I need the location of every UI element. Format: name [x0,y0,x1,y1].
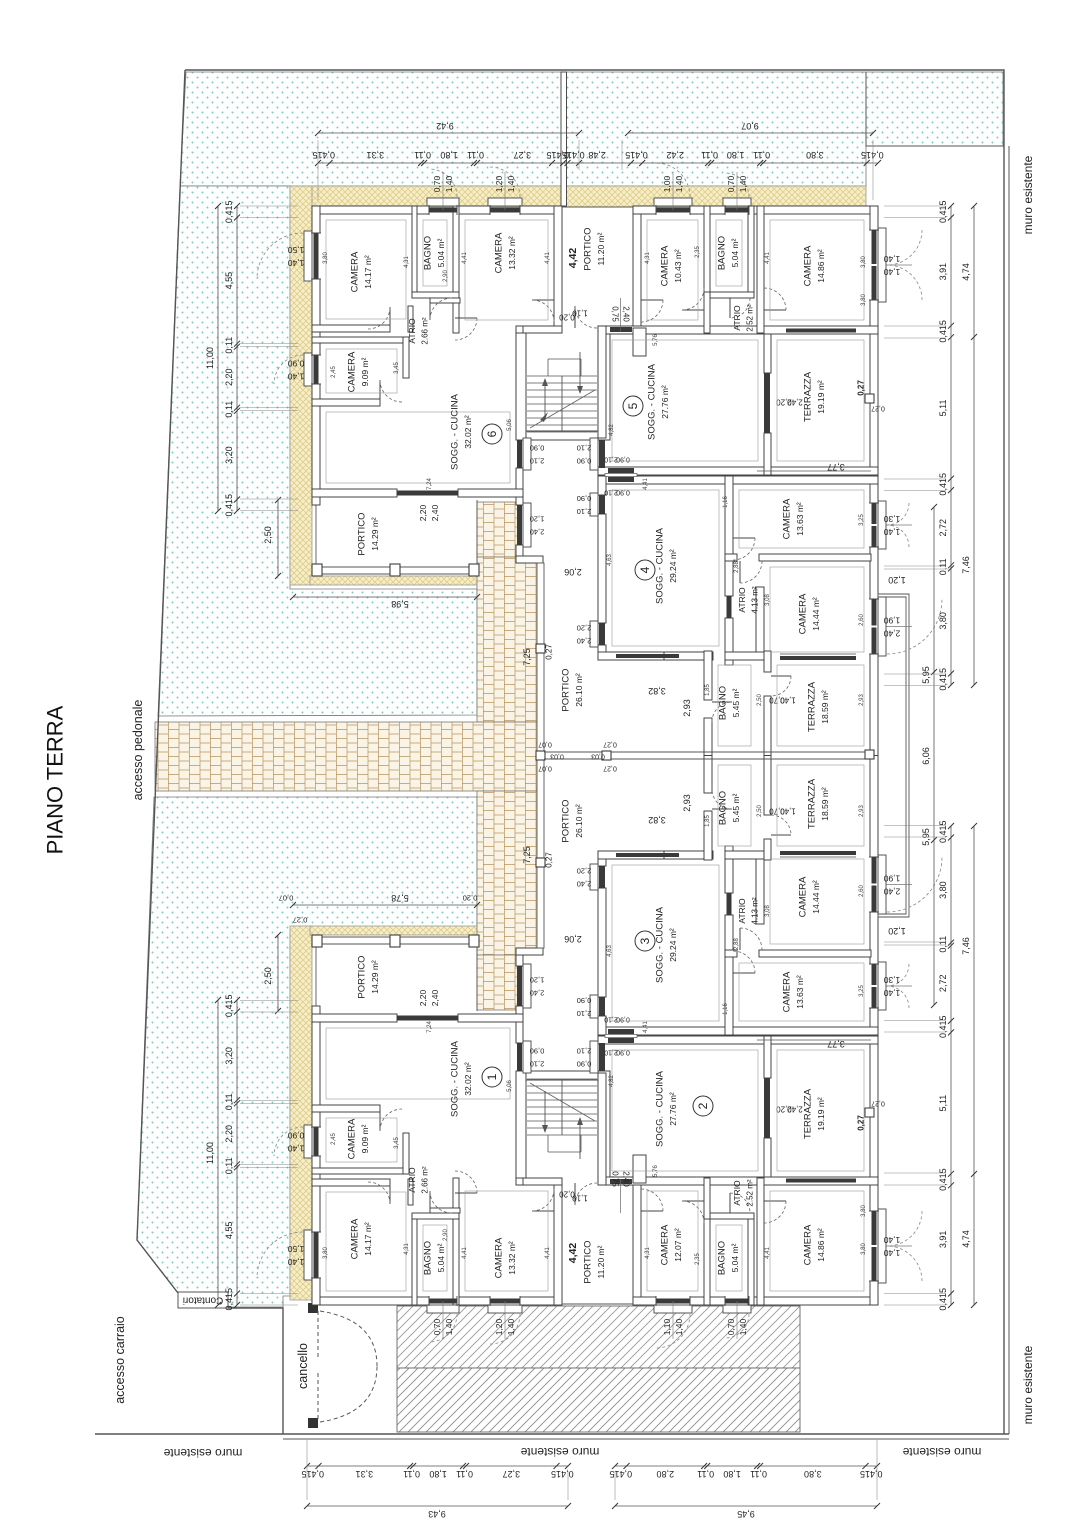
svg-text:PIANO TERRA: PIANO TERRA [43,705,68,854]
svg-text:CAMERA: CAMERA [782,498,793,539]
svg-text:1,20: 1,20 [888,575,906,585]
svg-text:0,27: 0,27 [857,380,866,396]
svg-text:CAMERA: CAMERA [660,245,671,286]
svg-text:2.52 m²: 2.52 m² [746,1179,755,1206]
svg-text:0,415: 0,415 [938,1288,948,1311]
svg-text:9,45: 9,45 [737,1509,755,1519]
svg-text:0,75: 0,75 [611,306,620,322]
svg-text:1: 1 [485,1073,499,1080]
svg-text:14.29 m²: 14.29 m² [370,517,380,551]
svg-text:9,42: 9,42 [436,121,454,131]
svg-text:PORTICO: PORTICO [357,512,368,555]
svg-text:27.76 m²: 27.76 m² [668,1092,678,1126]
svg-text:2,40: 2,40 [622,1171,631,1187]
svg-text:3,80: 3,80 [861,1205,867,1217]
svg-text:1,40: 1,40 [674,1318,684,1335]
svg-text:7,24: 7,24 [427,478,433,490]
svg-text:5: 5 [626,402,640,409]
svg-text:TERRAZZA: TERRAZZA [807,681,818,732]
svg-text:2,72: 2,72 [938,975,948,993]
svg-text:2,40: 2,40 [430,504,440,521]
svg-text:2,10: 2,10 [604,1016,618,1023]
svg-text:5,76: 5,76 [653,1165,659,1177]
svg-text:SOGG. - CUCINA: SOGG. - CUCINA [655,1070,666,1147]
svg-text:accesso pedonale: accesso pedonale [131,700,145,801]
svg-text:2,10: 2,10 [577,507,592,516]
svg-text:1,40: 1,40 [506,175,516,192]
svg-text:BAGNO: BAGNO [718,686,729,720]
svg-text:5,06: 5,06 [507,419,513,431]
svg-text:4,31: 4,31 [645,1247,651,1259]
svg-text:19.19 m²: 19.19 m² [816,380,826,414]
svg-text:3,80: 3,80 [323,252,329,264]
svg-text:2,40: 2,40 [787,398,803,407]
svg-text:0,11: 0,11 [467,150,484,160]
svg-text:14.17 m²: 14.17 m² [363,255,373,289]
svg-text:1,20: 1,20 [530,515,545,524]
svg-text:2,20: 2,20 [577,624,592,633]
svg-text:0,415: 0,415 [938,668,948,691]
svg-text:2,40: 2,40 [577,880,592,889]
svg-text:2: 2 [696,1102,710,1109]
svg-text:3,31: 3,31 [356,1469,374,1479]
svg-text:0,75: 0,75 [611,1171,620,1187]
svg-text:2,50: 2,50 [757,694,763,706]
svg-text:0,11: 0,11 [938,558,948,575]
svg-text:2,40: 2,40 [883,629,900,639]
svg-text:SOGG. - CUCINA: SOGG. - CUCINA [450,393,461,470]
svg-text:5.04 m²: 5.04 m² [436,1243,446,1272]
svg-text:3,31: 3,31 [367,150,385,160]
svg-text:1,80: 1,80 [440,150,458,160]
svg-text:2,50: 2,50 [757,805,763,817]
svg-text:0,415: 0,415 [224,201,234,224]
svg-text:5.04 m²: 5.04 m² [730,1243,740,1272]
svg-text:3,77: 3,77 [827,462,845,472]
svg-text:CAMERA: CAMERA [494,232,505,273]
svg-text:14.17 m²: 14.17 m² [363,1222,373,1256]
svg-text:3,45: 3,45 [394,362,400,374]
svg-text:0,11: 0,11 [224,401,234,418]
svg-text:14.29 m²: 14.29 m² [370,960,380,994]
svg-text:0,90: 0,90 [616,489,630,496]
svg-text:2,48: 2,48 [588,150,606,160]
svg-text:2,40: 2,40 [430,989,440,1006]
svg-text:1,40: 1,40 [883,267,900,277]
svg-text:2,40: 2,40 [787,1105,803,1114]
svg-text:4,63: 4,63 [607,554,613,566]
svg-text:0,415: 0,415 [938,820,948,843]
svg-text:9.09 m²: 9.09 m² [360,1124,370,1153]
svg-text:0,90: 0,90 [287,1131,304,1141]
svg-text:0,11: 0,11 [224,1093,234,1110]
svg-text:1,40: 1,40 [287,372,304,382]
svg-text:2.66 m²: 2.66 m² [421,317,430,344]
svg-text:5.04 m²: 5.04 m² [730,238,740,267]
svg-text:3,27: 3,27 [514,150,532,160]
svg-text:1,40: 1,40 [506,1318,516,1335]
svg-text:3,08: 3,08 [765,594,771,606]
svg-text:2,10: 2,10 [577,444,592,453]
svg-text:CAMERA: CAMERA [782,971,793,1012]
svg-text:1,00: 1,00 [662,175,672,192]
svg-text:5,78: 5,78 [391,893,409,903]
svg-text:27.76 m²: 27.76 m² [660,385,670,419]
svg-text:6: 6 [485,430,499,437]
svg-text:2,20: 2,20 [418,989,428,1006]
svg-text:0,90: 0,90 [577,494,592,503]
svg-text:13.63 m²: 13.63 m² [795,502,805,536]
svg-text:2,60: 2,60 [859,885,865,897]
svg-text:6,06: 6,06 [921,747,931,765]
svg-text:18.59 m²: 18.59 m² [820,787,830,821]
svg-text:1,40: 1,40 [883,527,900,537]
svg-text:2,40: 2,40 [883,887,900,897]
svg-text:1,40: 1,40 [738,175,748,192]
svg-text:accesso carraio: accesso carraio [113,1316,127,1404]
svg-text:2,20: 2,20 [577,867,592,876]
svg-text:14.44 m²: 14.44 m² [811,880,821,914]
svg-text:1,40: 1,40 [738,1318,748,1335]
svg-text:muro esistente: muro esistente [902,1445,981,1459]
svg-text:1,19: 1,19 [572,1194,588,1203]
svg-text:4,63: 4,63 [607,945,613,957]
svg-text:1,85: 1,85 [705,815,711,827]
svg-text:CAMERA: CAMERA [660,1224,671,1265]
svg-text:CAMERA: CAMERA [803,245,814,286]
svg-text:muro esistente: muro esistente [163,1446,242,1460]
svg-text:2,93: 2,93 [682,794,692,812]
svg-text:3,25: 3,25 [859,985,865,997]
svg-text:2,40: 2,40 [622,306,631,322]
svg-text:5,98: 5,98 [391,599,409,609]
svg-text:2,10: 2,10 [604,489,618,496]
svg-text:3,82: 3,82 [648,815,666,825]
svg-text:cancello: cancello [296,1343,310,1389]
svg-text:7,24: 7,24 [427,1021,433,1033]
svg-text:2,45: 2,45 [331,1133,337,1145]
svg-text:0,11: 0,11 [701,150,718,160]
svg-text:1,19: 1,19 [572,309,588,318]
svg-text:2,20: 2,20 [418,504,428,521]
svg-text:7,46: 7,46 [961,937,971,955]
svg-text:5,06: 5,06 [507,1080,513,1092]
svg-text:0,70: 0,70 [726,1318,736,1335]
svg-text:14.86 m²: 14.86 m² [816,249,826,283]
svg-text:SOGG. - CUCINA: SOGG. - CUCINA [450,1040,461,1117]
svg-text:Contatori: Contatori [183,1295,224,1306]
svg-text:4,41: 4,41 [462,1247,468,1259]
svg-text:0,415: 0,415 [938,1168,948,1191]
svg-text:ATRIO: ATRIO [737,587,747,613]
svg-text:2,93: 2,93 [682,699,692,717]
svg-text:1,85: 1,85 [705,684,711,696]
svg-text:2,35: 2,35 [695,1253,701,1265]
svg-text:4: 4 [638,566,652,573]
svg-text:4,41: 4,41 [462,252,468,264]
svg-text:5,76: 5,76 [653,334,659,346]
svg-text:CAMERA: CAMERA [798,876,809,917]
svg-text:1,80: 1,80 [723,1469,741,1479]
svg-text:0,11: 0,11 [403,1469,420,1479]
svg-text:4,41: 4,41 [643,1021,649,1033]
svg-text:2,50: 2,50 [263,967,273,985]
svg-text:PORTICO: PORTICO [357,955,368,998]
svg-text:3,27: 3,27 [503,1469,521,1479]
svg-text:0,415: 0,415 [301,1469,324,1479]
svg-text:0,415: 0,415 [610,1469,633,1479]
svg-text:18.59 m²: 18.59 m² [820,690,830,724]
svg-text:4,41: 4,41 [765,252,771,264]
svg-text:0,11: 0,11 [224,337,234,354]
svg-text:0,07: 0,07 [279,894,294,903]
svg-text:2,42: 2,42 [666,150,684,160]
svg-text:SOGG. - CUCINA: SOGG. - CUCINA [655,906,666,983]
svg-text:2,06: 2,06 [564,934,582,944]
svg-text:ATRIO: ATRIO [737,898,747,924]
svg-text:5,11: 5,11 [938,1095,948,1112]
svg-text:1,20: 1,20 [888,926,906,936]
svg-text:2,10: 2,10 [604,1049,618,1056]
svg-text:9.09 m²: 9.09 m² [360,357,370,386]
svg-text:3,77: 3,77 [827,1039,845,1049]
svg-text:ATRIO: ATRIO [732,1180,742,1206]
svg-text:4,74: 4,74 [961,1230,971,1248]
svg-text:1,40: 1,40 [780,807,796,816]
svg-text:muro esistente: muro esistente [1021,155,1035,234]
svg-text:11.20 m²: 11.20 m² [596,1245,606,1278]
svg-text:2,40: 2,40 [530,989,545,998]
svg-text:4,41: 4,41 [545,1247,551,1259]
svg-text:3,08: 3,08 [765,905,771,917]
svg-text:0,415: 0,415 [224,995,234,1018]
svg-text:2,06: 2,06 [564,567,582,577]
svg-text:11,00: 11,00 [205,347,215,369]
svg-text:0,07: 0,07 [538,741,552,748]
svg-text:4,42: 4,42 [567,1243,579,1264]
svg-text:CAMERA: CAMERA [494,1237,505,1278]
svg-text:1,50: 1,50 [287,1244,304,1254]
svg-text:19.19 m²: 19.19 m² [816,1097,826,1131]
svg-text:3,82: 3,82 [648,686,666,696]
svg-text:1,20: 1,20 [494,1318,504,1335]
svg-text:CAMERA: CAMERA [350,1218,361,1259]
svg-text:3,91: 3,91 [938,1231,948,1249]
svg-text:7,25: 7,25 [522,846,532,864]
svg-text:2,45: 2,45 [331,366,337,378]
svg-text:TERRAZZA: TERRAZZA [807,778,818,829]
svg-text:2,60: 2,60 [859,614,865,626]
svg-text:0,415: 0,415 [312,150,335,160]
svg-text:32.02 m²: 32.02 m² [463,415,473,449]
svg-text:4,74: 4,74 [961,263,971,281]
svg-text:0,11: 0,11 [697,1469,714,1479]
svg-text:2,90: 2,90 [443,270,449,282]
svg-text:2,40: 2,40 [530,528,545,537]
svg-text:2,88: 2,88 [734,938,740,950]
svg-text:1,40: 1,40 [883,254,900,264]
svg-text:1,40: 1,40 [780,696,796,705]
svg-text:0,415: 0,415 [860,1469,883,1479]
svg-text:4.13 m²: 4.13 m² [751,897,760,924]
svg-text:3,20: 3,20 [224,1047,234,1065]
svg-text:0,90: 0,90 [616,456,630,463]
svg-text:0,27: 0,27 [603,741,617,748]
svg-text:0,90: 0,90 [530,1047,545,1056]
svg-text:29.24 m²: 29.24 m² [668,549,678,583]
svg-text:ATRIO: ATRIO [407,318,417,344]
svg-text:0,70: 0,70 [432,175,442,192]
svg-text:12.07 m²: 12.07 m² [673,1228,683,1262]
svg-text:10.43 m²: 10.43 m² [673,249,683,283]
svg-text:3,80: 3,80 [804,1469,822,1479]
svg-text:4,55: 4,55 [224,1222,234,1240]
svg-text:5,95: 5,95 [921,666,931,684]
svg-text:1,40: 1,40 [287,258,304,268]
svg-text:ATRIO: ATRIO [407,1167,417,1193]
svg-text:1,50: 1,50 [287,245,304,255]
svg-text:0,70: 0,70 [432,1318,442,1335]
svg-text:2,10: 2,10 [530,1060,545,1069]
svg-text:0,27: 0,27 [871,1100,885,1107]
svg-text:1,80: 1,80 [727,150,745,160]
svg-text:9,07: 9,07 [741,121,759,131]
svg-text:1,40: 1,40 [287,1144,304,1154]
svg-text:SOGG. - CUCINA: SOGG. - CUCINA [647,363,658,440]
svg-text:2,20: 2,20 [224,368,234,386]
svg-text:0,27: 0,27 [857,1115,866,1131]
svg-text:1,20: 1,20 [530,976,545,985]
svg-text:3,80: 3,80 [861,256,867,268]
svg-text:0,07: 0,07 [538,765,552,772]
svg-text:14.44 m²: 14.44 m² [811,597,821,631]
svg-text:13.63 m²: 13.63 m² [795,975,805,1009]
svg-text:PORTICO: PORTICO [583,1240,594,1283]
svg-text:SOGG. - CUCINA: SOGG. - CUCINA [655,527,666,604]
svg-text:1,30: 1,30 [883,975,900,985]
svg-text:14.86 m²: 14.86 m² [816,1228,826,1262]
svg-text:0,415: 0,415 [625,150,648,160]
svg-text:CAMERA: CAMERA [803,1224,814,1265]
svg-text:0,27: 0,27 [545,644,554,660]
svg-text:0,415: 0,415 [938,473,948,496]
svg-text:7,46: 7,46 [961,556,971,574]
svg-text:1,40: 1,40 [444,175,454,192]
svg-text:0,27: 0,27 [293,916,308,925]
svg-text:5.45 m²: 5.45 m² [731,688,741,717]
svg-text:0,90: 0,90 [530,444,545,453]
svg-text:0,27: 0,27 [871,405,885,412]
svg-text:3,25: 3,25 [859,514,865,526]
svg-text:2,10: 2,10 [530,457,545,466]
svg-text:3: 3 [638,937,652,944]
svg-text:4,42: 4,42 [567,248,579,269]
svg-text:1,40: 1,40 [674,175,684,192]
svg-text:0,415: 0,415 [938,200,948,223]
svg-text:PORTICO: PORTICO [561,799,572,842]
svg-text:3,80: 3,80 [938,612,948,630]
svg-text:CAMERA: CAMERA [347,1118,358,1159]
svg-text:4.13 m²: 4.13 m² [751,586,760,613]
svg-text:1,16: 1,16 [723,496,729,508]
svg-text:muro esistente: muro esistente [520,1445,599,1459]
svg-text:1,40: 1,40 [883,988,900,998]
svg-text:BAGNO: BAGNO [717,236,728,270]
svg-text:7,25: 7,25 [522,648,532,666]
svg-text:0,90: 0,90 [616,1016,630,1023]
svg-text:2,50: 2,50 [263,526,273,544]
svg-text:4,31: 4,31 [404,1243,410,1255]
svg-text:PORTICO: PORTICO [583,227,594,270]
svg-text:BAGNO: BAGNO [423,236,434,270]
svg-text:2,10: 2,10 [577,1009,592,1018]
svg-text:4,41: 4,41 [643,478,649,490]
svg-text:2,35: 2,35 [695,246,701,258]
svg-text:2.52 m²: 2.52 m² [746,304,755,331]
svg-text:2,40: 2,40 [577,637,592,646]
svg-text:26.10 m²: 26.10 m² [574,673,584,707]
svg-text:2,10: 2,10 [577,1047,592,1056]
svg-text:CAMERA: CAMERA [798,593,809,634]
svg-text:TERRAZZA: TERRAZZA [803,1088,814,1139]
svg-text:0,11: 0,11 [938,936,948,953]
svg-text:5.45 m²: 5.45 m² [731,793,741,822]
svg-text:0,11: 0,11 [753,150,770,160]
svg-text:4,31: 4,31 [404,256,410,268]
svg-text:0,03: 0,03 [550,753,564,760]
svg-text:1,40: 1,40 [287,1257,304,1267]
svg-text:3,80: 3,80 [938,881,948,899]
svg-text:9,43: 9,43 [428,1509,446,1519]
svg-text:PORTICO: PORTICO [561,668,572,711]
svg-text:3,91: 3,91 [938,263,948,281]
svg-text:3,80: 3,80 [323,1247,329,1259]
svg-text:3,80: 3,80 [861,1243,867,1255]
svg-text:2,10: 2,10 [604,456,618,463]
svg-text:3,80: 3,80 [861,294,867,306]
svg-text:0,415: 0,415 [551,1469,574,1479]
svg-text:2,90: 2,90 [443,1229,449,1241]
svg-text:1,40: 1,40 [883,1248,900,1258]
svg-text:1,16: 1,16 [723,1003,729,1015]
svg-text:11.20 m²: 11.20 m² [596,232,606,265]
svg-text:3,45: 3,45 [394,1137,400,1149]
svg-text:CAMERA: CAMERA [347,351,358,392]
svg-text:0,11: 0,11 [750,1469,767,1479]
svg-text:CAMERA: CAMERA [350,251,361,292]
svg-text:0,90: 0,90 [577,1060,592,1069]
svg-text:26.10 m²: 26.10 m² [574,804,584,838]
svg-text:4,82: 4,82 [609,424,615,436]
svg-text:0,415: 0,415 [938,1015,948,1038]
svg-text:BAGNO: BAGNO [717,1241,728,1275]
svg-text:0,415: 0,415 [938,320,948,343]
svg-text:0,90: 0,90 [616,1049,630,1056]
svg-text:13.32 m²: 13.32 m² [507,1241,517,1275]
svg-text:11,00: 11,00 [205,1142,215,1164]
svg-text:2.66 m²: 2.66 m² [421,1166,430,1193]
svg-text:ATRIO: ATRIO [732,305,742,331]
svg-text:muro esistente: muro esistente [1021,1345,1035,1424]
svg-text:0,11: 0,11 [456,1469,473,1479]
svg-text:13.32 m²: 13.32 m² [507,236,517,270]
svg-text:32.02 m²: 32.02 m² [463,1062,473,1096]
svg-text:5.04 m²: 5.04 m² [436,238,446,267]
svg-text:2,20: 2,20 [224,1125,234,1143]
svg-text:4,41: 4,41 [545,252,551,264]
svg-text:1,30: 1,30 [883,514,900,524]
svg-text:2,93: 2,93 [859,694,865,706]
